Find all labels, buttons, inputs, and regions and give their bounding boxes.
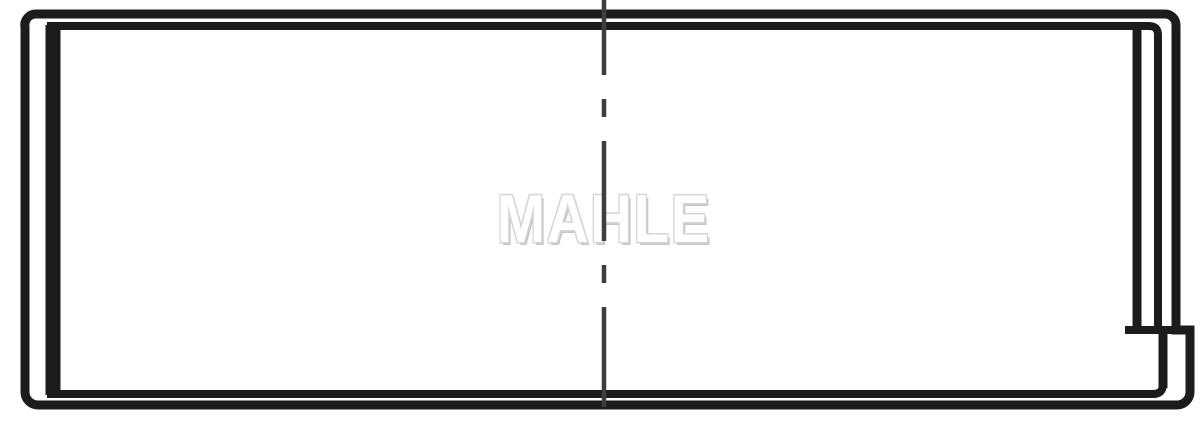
bearing-shell-drawing: MAHLE (0, 0, 1200, 446)
technical-drawing-svg (0, 0, 1200, 446)
outer-contour (25, 14, 1190, 405)
